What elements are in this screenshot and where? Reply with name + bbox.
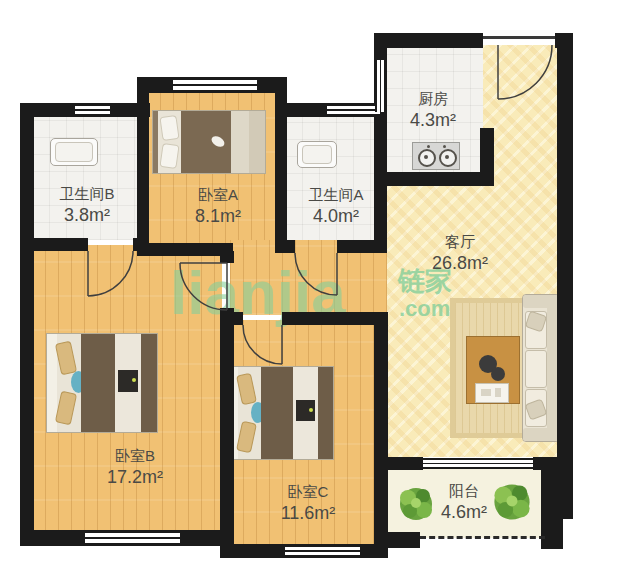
wall: [374, 312, 388, 558]
wall: [220, 308, 234, 558]
wall: [337, 240, 387, 253]
wall: [137, 77, 149, 251]
lianjia-watermark-com: .com: [399, 298, 450, 320]
room-area: 4.6m²: [441, 501, 487, 524]
room-name: 阳台: [441, 482, 487, 501]
window: [327, 104, 380, 116]
room-label-bathroom-b: 卫生间B 3.8m²: [59, 185, 114, 226]
room-area: 3.8m²: [59, 204, 114, 227]
wall: [382, 457, 423, 470]
room-area: 4.3m²: [410, 109, 456, 132]
sofa-icon: [522, 294, 560, 442]
room-label-kitchen: 厨房 4.3m²: [410, 90, 456, 131]
window: [85, 531, 180, 545]
wall: [541, 517, 563, 549]
room-area: 4.0m²: [308, 205, 363, 228]
room-name: 厨房: [410, 90, 456, 109]
window: [75, 104, 110, 116]
bathtub-icon: [50, 138, 98, 166]
wall: [220, 251, 234, 263]
wall: [382, 532, 420, 548]
window: [173, 78, 257, 92]
wall: [20, 103, 34, 546]
floor-plan: lianjia 链家 .com: [0, 0, 623, 575]
wall: [374, 33, 483, 48]
wall: [220, 312, 243, 325]
wall: [282, 312, 387, 325]
wall: [480, 128, 494, 176]
bed-icon: [152, 110, 266, 174]
room-area: 26.8m²: [432, 252, 488, 275]
wall: [287, 240, 295, 253]
window: [375, 60, 386, 112]
room-name: 卫生间B: [59, 185, 114, 204]
coffee-table-icon: [466, 336, 520, 404]
wall: [20, 238, 88, 251]
plant-icon: [396, 484, 436, 524]
balcony-open-edge: [420, 536, 545, 539]
room-name: 卧室C: [281, 483, 336, 502]
room-label-living-room: 客厅 26.8m²: [432, 233, 488, 274]
wall: [137, 243, 233, 256]
stove-icon: [412, 142, 460, 170]
room-name: 卧室B: [107, 447, 163, 466]
bathtub-icon: [297, 141, 337, 168]
wall: [557, 33, 573, 470]
room-label-bedroom-a: 卧室A 8.1m²: [195, 186, 241, 227]
bed-icon: [46, 333, 158, 433]
entry-door-lintel: [483, 36, 555, 39]
room-area: 11.6m²: [281, 502, 336, 525]
room-label-balcony: 阳台 4.6m²: [441, 482, 487, 523]
room-area: 8.1m²: [195, 205, 241, 228]
room-name: 客厅: [432, 233, 488, 252]
wall: [541, 457, 573, 519]
room-label-bathroom-a: 卫生间A 4.0m²: [308, 186, 363, 227]
room-label-bedroom-c: 卧室C 11.6m²: [281, 483, 336, 524]
plant-icon: [490, 480, 534, 524]
room-name: 卫生间A: [308, 186, 363, 205]
room-name: 卧室A: [195, 186, 241, 205]
bed-icon: [228, 366, 334, 460]
balcony-sliding-window: [423, 458, 533, 469]
window: [285, 545, 360, 557]
room-area: 17.2m²: [107, 466, 163, 489]
room-label-bedroom-b: 卧室B 17.2m²: [107, 447, 163, 488]
wall: [374, 172, 494, 186]
